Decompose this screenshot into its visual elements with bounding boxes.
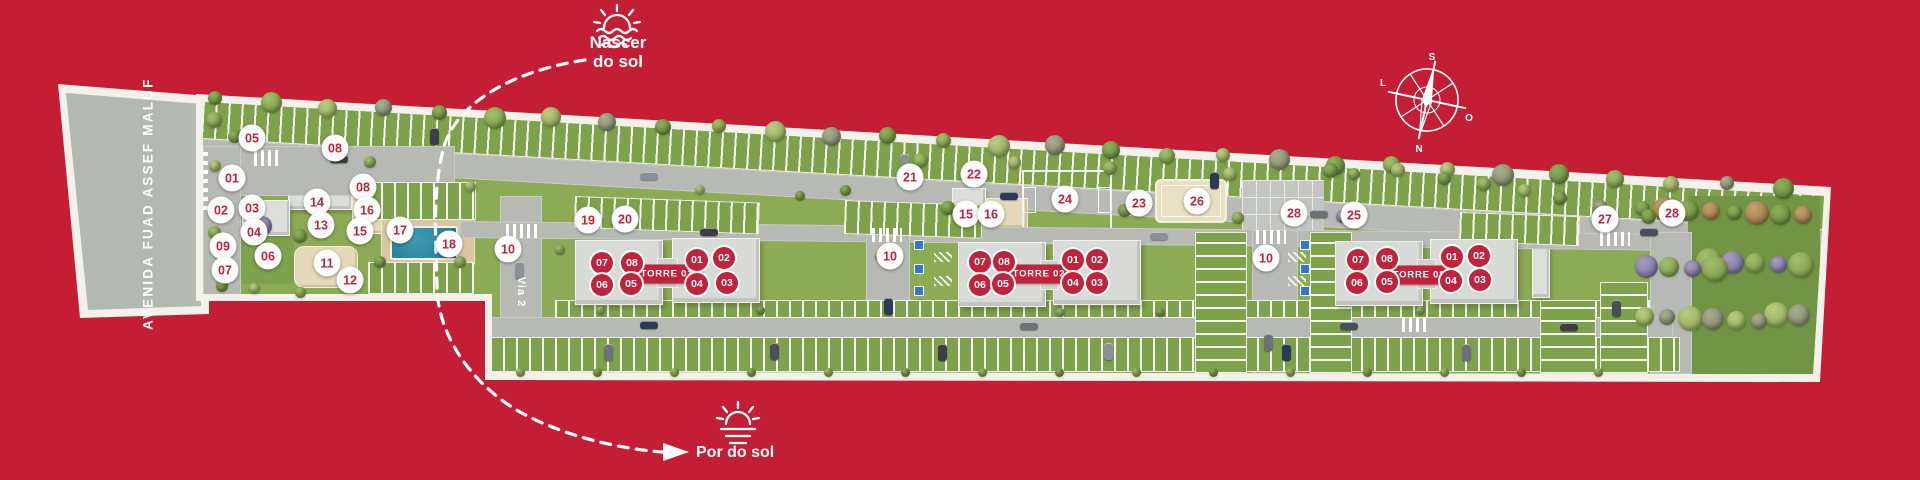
site-marker-02: 02 bbox=[208, 197, 235, 224]
tower-1-unit-marker-05: 05 bbox=[620, 273, 642, 295]
site-marker-26: 26 bbox=[1184, 188, 1211, 215]
site-marker-16: 16 bbox=[978, 201, 1005, 228]
site-marker-08: 08 bbox=[322, 135, 349, 162]
tower-2-unit-marker-02: 02 bbox=[1086, 249, 1108, 271]
site-marker-11: 11 bbox=[314, 250, 341, 277]
site-marker-05: 05 bbox=[239, 125, 266, 152]
tower-2-unit-marker-03: 03 bbox=[1086, 272, 1108, 294]
site-marker-19: 19 bbox=[575, 207, 602, 234]
site-marker-28: 28 bbox=[1659, 200, 1686, 227]
avenue-name-label: AVENIDA FUAD ASSEF MALUF bbox=[100, 100, 196, 308]
site-marker-04: 04 bbox=[241, 219, 268, 246]
site-marker-06: 06 bbox=[255, 243, 282, 270]
tower-1-unit-marker-08: 08 bbox=[621, 252, 643, 274]
tower-2-unit-marker-05: 05 bbox=[992, 273, 1014, 295]
site-marker-13: 13 bbox=[308, 212, 335, 239]
tower-2-unit-marker-01: 01 bbox=[1062, 249, 1084, 271]
site-marker-07: 07 bbox=[212, 257, 239, 284]
site-marker-15: 15 bbox=[347, 218, 374, 245]
tower-3-unit-marker-08: 08 bbox=[1376, 248, 1398, 270]
tower-1-unit-marker-04: 04 bbox=[686, 273, 708, 295]
site-marker-27: 27 bbox=[1592, 206, 1619, 233]
tower-1-unit-marker-01: 01 bbox=[686, 249, 708, 271]
site-marker-18: 18 bbox=[436, 231, 463, 258]
tower-3-unit-marker-07: 07 bbox=[1347, 249, 1369, 271]
tower-3-unit-marker-02: 02 bbox=[1468, 245, 1490, 267]
site-marker-01: 01 bbox=[219, 165, 246, 192]
site-marker-21: 21 bbox=[897, 164, 924, 191]
tower-2-unit-marker-08: 08 bbox=[993, 251, 1015, 273]
site-marker-10: 10 bbox=[495, 236, 522, 263]
tower-1-unit-marker-06: 06 bbox=[591, 274, 613, 296]
site-marker-22: 22 bbox=[961, 161, 988, 188]
tower-3-unit-marker-04: 04 bbox=[1440, 270, 1462, 292]
tower-1-unit-marker-03: 03 bbox=[716, 272, 738, 294]
tower-1-unit-marker-02: 02 bbox=[713, 247, 735, 269]
tower-3-unit-marker-03: 03 bbox=[1469, 269, 1491, 291]
tower-3-unit-marker-05: 05 bbox=[1376, 271, 1398, 293]
site-marker-17: 17 bbox=[387, 217, 414, 244]
tower-2-unit-marker-04: 04 bbox=[1062, 272, 1084, 294]
tower-2-unit-marker-07: 07 bbox=[969, 251, 991, 273]
tower-2-unit-marker-06: 06 bbox=[969, 274, 991, 296]
site-marker-28: 28 bbox=[1281, 200, 1308, 227]
tower-3-unit-marker-06: 06 bbox=[1346, 272, 1368, 294]
site-marker-03: 03 bbox=[239, 195, 266, 222]
site-marker-23: 23 bbox=[1126, 190, 1153, 217]
site-marker-15: 15 bbox=[953, 201, 980, 228]
site-marker-25: 25 bbox=[1341, 202, 1368, 229]
via-2-label: Via 2 bbox=[515, 277, 527, 308]
markers-layer: TORRE 010708010206050403TORRE 0207080102… bbox=[0, 0, 1920, 480]
site-marker-20: 20 bbox=[612, 206, 639, 233]
site-marker-10: 10 bbox=[1253, 245, 1280, 272]
tower-1-unit-marker-07: 07 bbox=[591, 252, 613, 274]
site-marker-12: 12 bbox=[337, 267, 364, 294]
site-marker-09: 09 bbox=[210, 233, 237, 260]
tower-3-unit-marker-01: 01 bbox=[1441, 246, 1463, 268]
site-marker-10: 10 bbox=[877, 243, 904, 270]
site-marker-24: 24 bbox=[1052, 186, 1079, 213]
site-plan-canvas: { "colors":{"background":"#c41e35","mark… bbox=[0, 0, 1920, 480]
